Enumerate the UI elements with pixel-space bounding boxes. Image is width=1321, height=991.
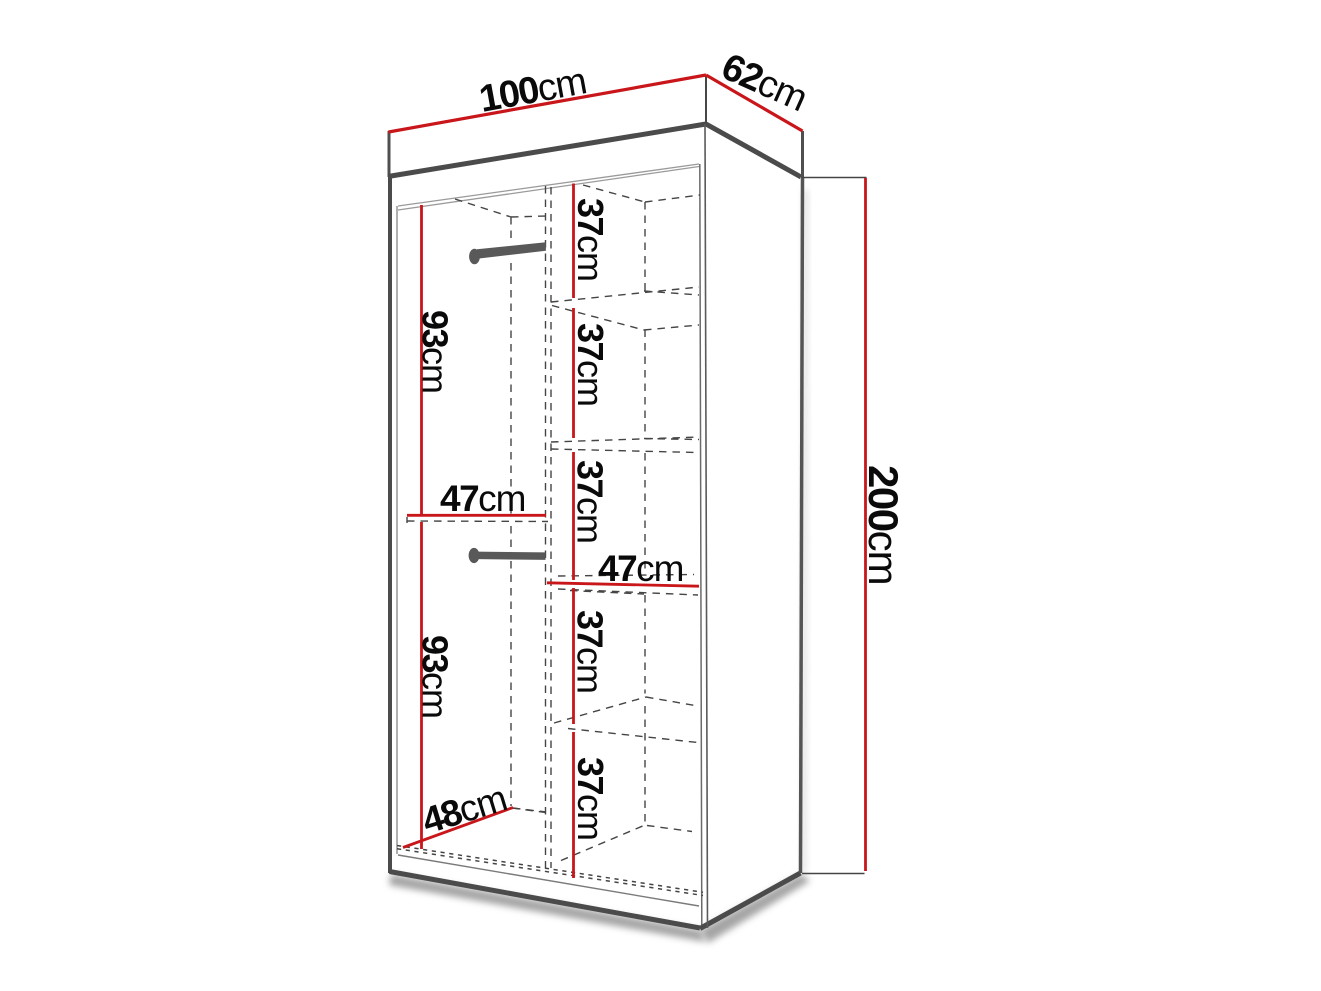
svg-text:37cm: 37cm (570, 757, 611, 840)
svg-text:37cm: 37cm (570, 323, 611, 406)
svg-text:37cm: 37cm (570, 198, 611, 281)
svg-text:37cm: 37cm (570, 460, 611, 543)
svg-text:200cm: 200cm (860, 465, 907, 585)
svg-text:47cm: 47cm (598, 548, 683, 589)
svg-text:93cm: 93cm (415, 310, 456, 393)
svg-text:47cm: 47cm (440, 478, 525, 519)
svg-text:37cm: 37cm (570, 610, 611, 693)
svg-text:93cm: 93cm (415, 635, 456, 718)
